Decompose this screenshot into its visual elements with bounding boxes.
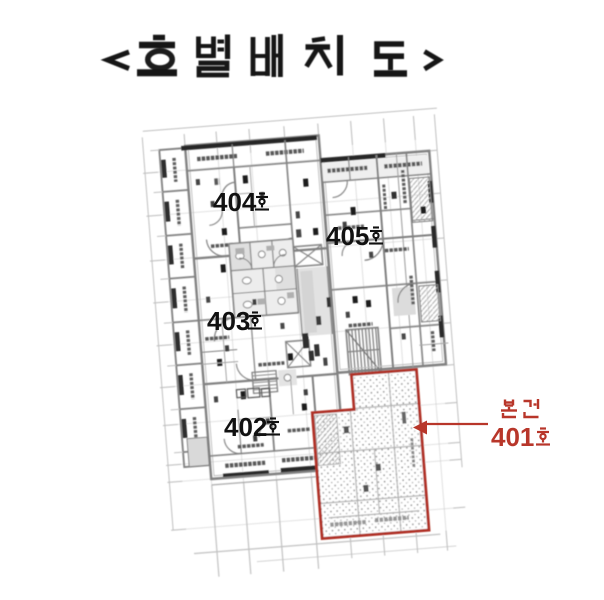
svg-text:401: 401 bbox=[491, 422, 534, 452]
svg-text:404: 404 bbox=[213, 187, 257, 217]
svg-text:403: 403 bbox=[207, 306, 250, 336]
svg-text:402: 402 bbox=[224, 412, 267, 442]
svg-text:405: 405 bbox=[326, 221, 369, 251]
